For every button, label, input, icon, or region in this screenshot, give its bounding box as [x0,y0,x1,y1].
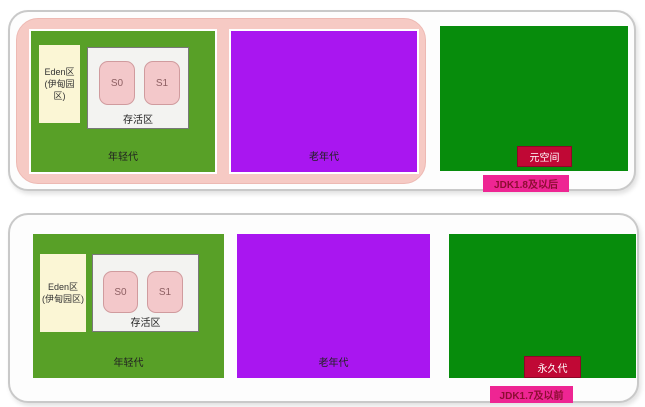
young-gen-box: Eden区(伊甸园区) S0 S1 存活区 年轻代 [33,234,224,378]
jdk7-panel: Eden区(伊甸园区) S0 S1 存活区 年轻代 老年代 永久代 JDK1.7… [8,213,639,403]
s0-box: S0 [103,271,138,313]
eden-box: Eden区(伊甸园区) [40,254,86,332]
young-gen-box: Eden区(伊甸园区) S0 S1 存活区 年轻代 [29,29,217,174]
survivor-label: 存活区 [88,111,188,126]
metaspace-badge: 元空间 [517,146,572,167]
jdk8-panel: Eden区(伊甸园区) S0 S1 存活区 年轻代 老年代 元空间 JDK1.8… [8,10,636,191]
eden-label: Eden区(伊甸园区) [41,66,78,102]
s1-box: S1 [147,271,183,313]
survivor-box: S0 S1 存活区 [87,47,189,129]
old-gen-box: 老年代 [229,29,419,174]
permgen-box: 永久代 [449,234,636,378]
young-gen-label: 年轻代 [33,354,224,369]
survivor-label: 存活区 [93,314,198,329]
eden-box: Eden区(伊甸园区) [39,45,80,123]
metaspace-box: 元空间 [440,26,628,171]
old-gen-label: 老年代 [237,354,430,369]
jvm-memory-diagram: Eden区(伊甸园区) S0 S1 存活区 年轻代 老年代 元空间 JDK1.8… [0,0,645,407]
jdk8-version-badge: JDK1.8及以后 [483,175,569,192]
survivor-box: S0 S1 存活区 [92,254,199,332]
eden-label: Eden区(伊甸园区) [42,281,84,305]
young-gen-label: 年轻代 [31,148,215,163]
s0-box: S0 [99,61,135,105]
permgen-badge: 永久代 [524,356,581,378]
old-gen-box: 老年代 [237,234,430,378]
jdk7-version-badge: JDK1.7及以前 [490,386,573,403]
heap-container: Eden区(伊甸园区) S0 S1 存活区 年轻代 老年代 [16,18,426,184]
old-gen-label: 老年代 [231,148,417,163]
s1-box: S1 [144,61,180,105]
